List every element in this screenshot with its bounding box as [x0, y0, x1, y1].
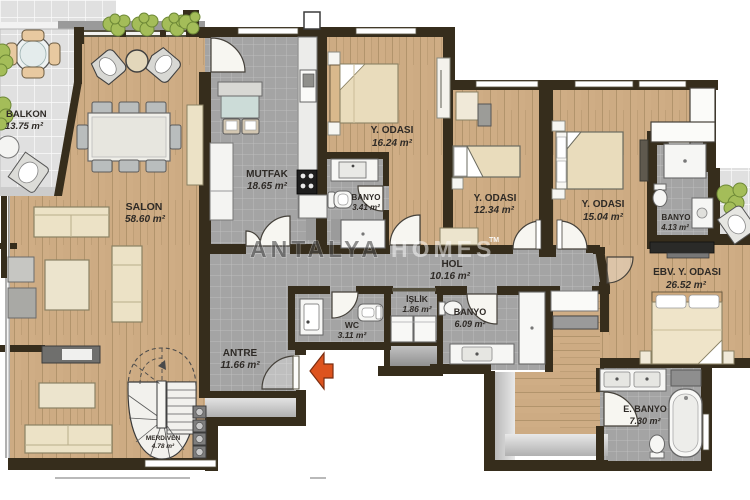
svg-text:Y. ODASI: Y. ODASI	[582, 199, 625, 210]
svg-text:3.11 m²: 3.11 m²	[338, 330, 368, 340]
svg-text:15.04 m²: 15.04 m²	[583, 212, 624, 223]
svg-text:11.66 m²: 11.66 m²	[220, 360, 260, 371]
svg-text:18.65 m²: 18.65 m²	[247, 181, 288, 192]
svg-text:4.13 m²: 4.13 m²	[660, 223, 689, 232]
svg-text:3.41 m²: 3.41 m²	[352, 203, 380, 212]
svg-text:1.86 m²: 1.86 m²	[402, 304, 432, 314]
svg-text:BANYO: BANYO	[352, 193, 381, 202]
svg-text:26.52 m²: 26.52 m²	[665, 280, 707, 291]
svg-text:7.30 m²: 7.30 m²	[629, 416, 661, 426]
svg-text:10.16 m²: 10.16 m²	[430, 271, 471, 282]
svg-text:MUTFAK: MUTFAK	[246, 169, 288, 180]
svg-text:ANTALYA: ANTALYA	[250, 236, 382, 262]
svg-text:4.78 m²: 4.78 m²	[151, 443, 175, 450]
svg-text:ANTRE: ANTRE	[223, 348, 258, 359]
svg-text:Y. ODASI: Y. ODASI	[474, 193, 517, 204]
svg-text:SALON: SALON	[126, 201, 163, 213]
svg-text:6.09 m²: 6.09 m²	[454, 319, 486, 329]
svg-text:58.60 m²: 58.60 m²	[125, 214, 166, 225]
svg-text:WC: WC	[345, 320, 359, 330]
svg-text:12.34 m²: 12.34 m²	[474, 205, 515, 216]
svg-text:Y. ODASI: Y. ODASI	[371, 125, 414, 136]
svg-text:MERDİVEN: MERDİVEN	[146, 434, 181, 442]
svg-text:İŞLİK: İŞLİK	[406, 294, 429, 304]
svg-text:BALKON: BALKON	[6, 109, 47, 120]
svg-text:13.75 m²: 13.75 m²	[5, 121, 44, 132]
svg-text:TM: TM	[489, 237, 499, 244]
svg-text:BANYO: BANYO	[454, 307, 487, 317]
svg-text:16.24 m²: 16.24 m²	[372, 138, 413, 149]
svg-text:BANYO: BANYO	[662, 213, 691, 222]
svg-text:E. BANYO: E. BANYO	[623, 404, 667, 414]
svg-text:EBV. Y. ODASI: EBV. Y. ODASI	[653, 267, 721, 278]
svg-text:HOL: HOL	[441, 259, 462, 270]
